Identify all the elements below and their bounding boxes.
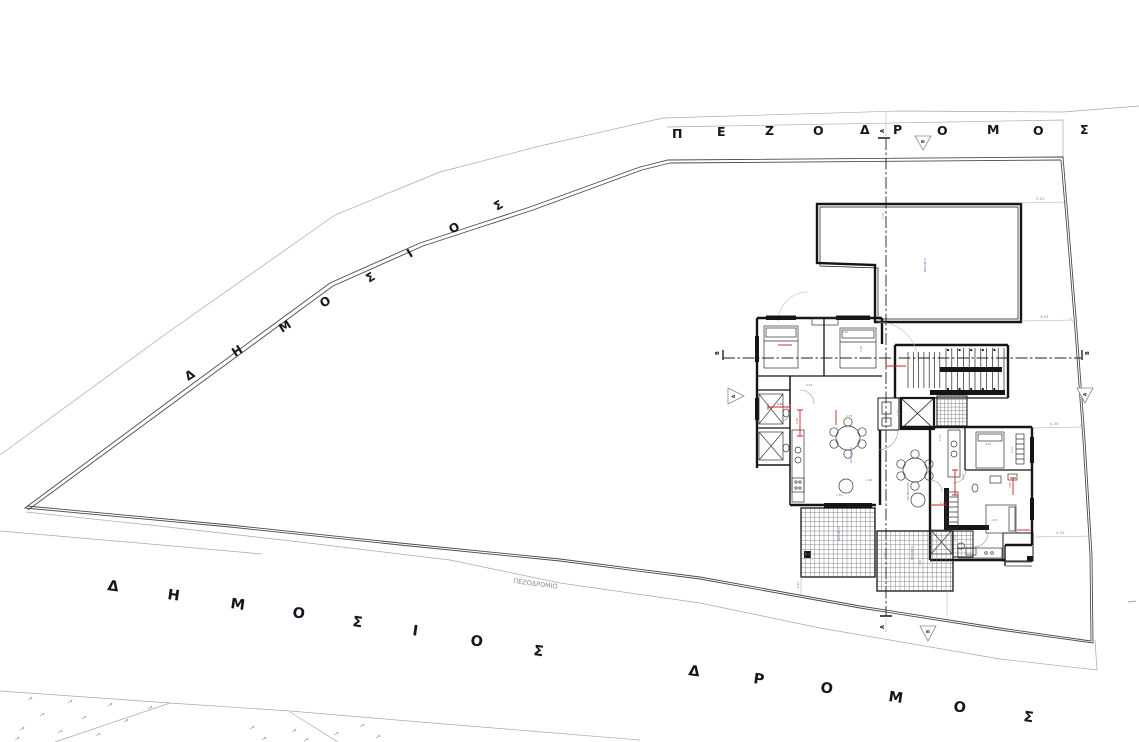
stair-dot (994, 349, 996, 351)
road-label-bottom-1-letter: Ο (291, 605, 305, 623)
dining-table (903, 458, 927, 482)
terrace-outer-wall (817, 204, 1021, 322)
interior-dimension: 2.35 (846, 414, 852, 418)
interior-dimension: 1.85 (896, 410, 900, 416)
road-label-left-letter: Σ (491, 197, 505, 213)
machine-room-unit (882, 402, 891, 414)
dim-ext (1021, 199, 1068, 205)
elevator-x (901, 398, 934, 429)
balcony-door-fill (824, 503, 872, 508)
terrain-tick (20, 727, 24, 730)
interior-dimension: 3.40 (918, 560, 922, 566)
dining-table (836, 426, 860, 450)
terrain-tick (304, 738, 308, 741)
stair-dot (959, 388, 961, 390)
veranda-a-tile-grid (801, 508, 875, 577)
terrain-tick (124, 719, 128, 722)
bed (764, 326, 798, 368)
chair (844, 418, 852, 426)
stair-dot (970, 388, 972, 390)
chair (858, 428, 866, 436)
stair-south-wall-fill (930, 390, 1005, 395)
boundary-dimension: 3.03 (1040, 314, 1049, 319)
road-label-top-letter: Μ (987, 122, 999, 137)
chair (897, 472, 905, 480)
road-label-left-letter: Σ (363, 269, 377, 285)
chair (911, 450, 919, 458)
road-label-bottom-1-letter: Ι (411, 623, 419, 640)
interior-dimension: 1.20 (938, 435, 942, 441)
window-fill (1030, 498, 1034, 520)
boundary-dimension: 4.20 (1056, 530, 1065, 535)
road-edges (0, 106, 1139, 742)
chair (830, 428, 838, 436)
door-arcs (781, 322, 988, 547)
corridor-wall-fill-v (944, 488, 949, 530)
corridor-wall-fill-h (944, 525, 989, 530)
section-triangles (728, 136, 1093, 641)
section-triangle-letter-top: Β (921, 140, 926, 143)
terrain-tick (82, 716, 86, 719)
terrain-line-bottom (0, 691, 640, 740)
section-triangle-letter-bottom: Β (926, 630, 931, 633)
road-label-bottom-2-letter: Δ (687, 663, 701, 681)
road-label-bottom-2-letter: Ρ (752, 671, 765, 688)
boundary-dimension: 4.30 (1050, 421, 1059, 426)
road-label-bottom-1-letter: Η (166, 587, 180, 605)
terrain-tick (334, 732, 338, 735)
stair-dot (994, 388, 996, 390)
interior-dimension: 3.95 (928, 464, 932, 470)
room-label-veranda_b: ΒΕΡΑΝΤΑ (910, 545, 914, 560)
interior-dimension: 1.35 (859, 346, 863, 352)
red-dimension: 0.80 (1008, 482, 1012, 488)
terrain-tick (292, 729, 296, 732)
room-label-veranda_a: ΒΕΡΑΝΤΑ (837, 526, 841, 541)
terrain-tick (96, 733, 100, 736)
terrain-tick (108, 703, 112, 706)
stray-tick (1128, 601, 1136, 602)
terrain-tick (40, 713, 44, 716)
road-label-top-letter: Ο (937, 123, 948, 138)
road-labels: ΠΕΖΟΔΡΟΜΟΣΔΗΜΟΣΙΟΣΔΗΜΟΣΙΟΣΔΡΟΜΟΣΠΕΖΟΔΡΟΜ… (106, 122, 1088, 726)
road-label-bottom-2-letter: Ο (952, 699, 966, 717)
road-label-top-letter: Δ (860, 122, 870, 137)
interior-dimension: 2.90 (866, 478, 872, 482)
veranda-post (804, 551, 811, 558)
road-label-bottom-2-letter: Σ (1022, 709, 1034, 726)
room-label-dining: ΤΡΑΠΕΖΑΡΙΑ (906, 481, 910, 502)
plot-boundary-inner-top (670, 160, 1061, 163)
window-fill (836, 316, 870, 321)
road-label-bottom-1-letter: Ο (469, 633, 483, 651)
chair (911, 482, 919, 490)
interior-dimension: 4.43 (806, 383, 812, 387)
interior-dimension: 4.35 (991, 518, 997, 522)
interior-dimension: 1.50 (836, 493, 842, 497)
road-label-top-letter: Ο (1033, 123, 1044, 138)
terrain-tick (28, 697, 32, 700)
site-plan-drawing: ΠΕΖΟΔΡΟΜΟΣΔΗΜΟΣΙΟΣΔΗΜΟΣΙΟΣΔΡΟΜΟΣΠΕΖΟΔΡΟΜ… (0, 0, 1139, 742)
site-plan-canvas: ΠΕΖΟΔΡΟΜΟΣΔΗΜΟΣΙΟΣΔΗΜΟΣΙΟΣΔΡΟΜΟΣΠΕΖΟΔΡΟΜ… (0, 0, 1139, 742)
stair-dot (959, 349, 961, 351)
window-fill (766, 316, 796, 321)
lobby-tile-grid (937, 396, 967, 426)
interior-dimension: 2.20 (883, 553, 887, 559)
boundary-dimension: 3.01 (1036, 196, 1045, 201)
red-dimension-lines (768, 345, 1030, 530)
terrain-tick (68, 700, 72, 703)
terrain-tick (148, 706, 152, 709)
room-label-terrace: ΒΕΡΑΝΤΑ (923, 257, 927, 272)
terrain-tick (58, 730, 62, 733)
road-label-top-letter: Ζ (765, 123, 774, 138)
interior-dimension: 4.50 (842, 330, 848, 334)
section-letter-b-right: Β (1085, 351, 1091, 355)
door-arc (800, 390, 814, 404)
plot-boundary-outer (25, 157, 1093, 643)
section-letter-a-bottom: Α (880, 625, 886, 629)
terrain-tick (376, 735, 380, 738)
road-label-top-letter: Σ (1080, 122, 1089, 137)
machine-room-unit (882, 418, 891, 426)
stair-dot (947, 349, 949, 351)
section-letter-b-left: Β (715, 351, 721, 355)
roof-terrace (778, 204, 1021, 322)
stair-dot (982, 388, 984, 390)
chair (830, 440, 838, 448)
interior-dimension: 4.28 (961, 474, 965, 480)
road-label-bottom-1-letter: Δ (106, 578, 120, 596)
road-label-top-letter: Π (672, 126, 682, 141)
terrain-tick (250, 726, 254, 729)
road-label-top-letter: Ο (813, 123, 824, 138)
road-bottom-left-edge (0, 531, 262, 554)
veranda-b-tile-grid (877, 531, 953, 591)
terrain-tick (15, 737, 19, 740)
interior-dimension: 4.85 (985, 442, 991, 446)
bed (840, 328, 876, 368)
interior-dimension: 1.45 (796, 582, 800, 588)
section-letter-a-top: Α (880, 129, 886, 133)
sidewalk-label: ΠΕΖΟΔΡΟΜΙΟ (513, 577, 558, 591)
road-label-left-letter: Η (229, 342, 245, 359)
plot-boundary-inner-bottom (27, 506, 1091, 641)
terrain-wedge1-diagonal (55, 703, 170, 742)
terrain-tick (262, 737, 266, 740)
road-label-bottom-2-letter: Μ (887, 689, 904, 707)
window-fill (755, 398, 759, 420)
window-fill (1030, 437, 1034, 463)
interior-dimension: 5.01 (881, 213, 885, 219)
plot-boundary-inner-diagonal (28, 163, 670, 510)
road-label-top-letter: Ρ (893, 122, 902, 137)
stair-dot (982, 349, 984, 351)
plot-boundary (25, 157, 1093, 643)
chair (897, 460, 905, 468)
red-dimension: 0.90 (777, 402, 783, 406)
interior-dimension: 1.70 (1010, 447, 1014, 453)
terrain-wedge2-diagonal (290, 712, 338, 742)
terrain-tick (360, 724, 364, 727)
road-left-outer-edge (0, 118, 663, 455)
bed (976, 432, 1004, 468)
door-arc (974, 533, 988, 547)
exterior-steps (1006, 562, 1032, 566)
chair (858, 440, 866, 448)
stair-dot (970, 349, 972, 351)
red-dimension: 2.35 (795, 418, 799, 424)
road-label-top-letter: Ε (717, 124, 726, 139)
road-label-bottom-1-letter: Μ (229, 596, 246, 614)
room-label-living: ΚΑΘΙΣΤΙΚΟ (849, 446, 853, 463)
road-label-bottom-1-letter: Σ (532, 643, 544, 660)
stair-dot (947, 388, 949, 390)
door-arc (930, 480, 942, 492)
red-dimension: 1.75 (940, 501, 946, 505)
road-label-bottom-2-letter: Ο (819, 680, 833, 698)
door-arc (878, 322, 918, 362)
road-top-outer-edge (663, 106, 1139, 118)
road-label-bottom-1-letter: Σ (351, 614, 363, 631)
interior-dimension: 1.10 (953, 535, 957, 541)
